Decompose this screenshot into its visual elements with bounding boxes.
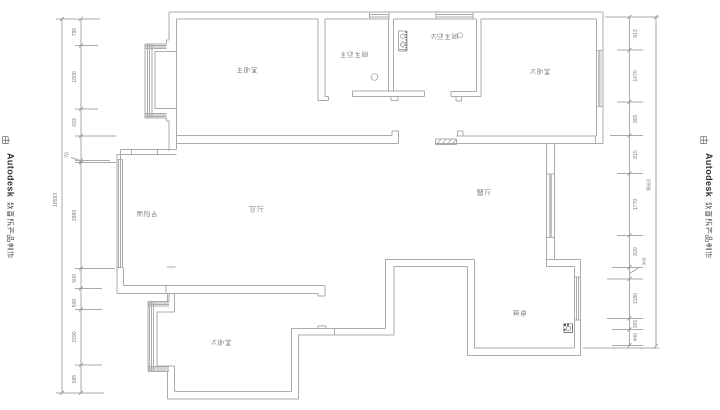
svg-text:70: 70 [65, 152, 71, 158]
svg-text:1800: 1800 [72, 71, 78, 82]
svg-text:795: 795 [72, 28, 78, 37]
svg-text:2980: 2980 [72, 210, 78, 221]
svg-text:693: 693 [72, 118, 78, 127]
svg-text:10593: 10593 [53, 193, 59, 207]
svg-text:365: 365 [633, 320, 639, 329]
svg-text:500: 500 [72, 299, 78, 308]
svg-text:Autodesk: Autodesk [704, 153, 714, 198]
svg-text:815: 815 [633, 150, 639, 159]
svg-text:1770: 1770 [633, 199, 639, 210]
svg-text:695: 695 [72, 375, 78, 384]
svg-text:1470: 1470 [633, 70, 639, 81]
svg-text:9563: 9563 [647, 179, 653, 190]
svg-text:Autodesk: Autodesk [6, 153, 16, 198]
svg-text:820: 820 [633, 247, 639, 256]
svg-text:305: 305 [642, 257, 648, 265]
svg-text:913: 913 [633, 29, 639, 38]
svg-text:905: 905 [633, 114, 639, 123]
svg-text:1180: 1180 [633, 293, 639, 304]
svg-text:440: 440 [633, 333, 639, 342]
svg-text:1590: 1590 [72, 331, 78, 342]
svg-text:500: 500 [72, 274, 78, 283]
